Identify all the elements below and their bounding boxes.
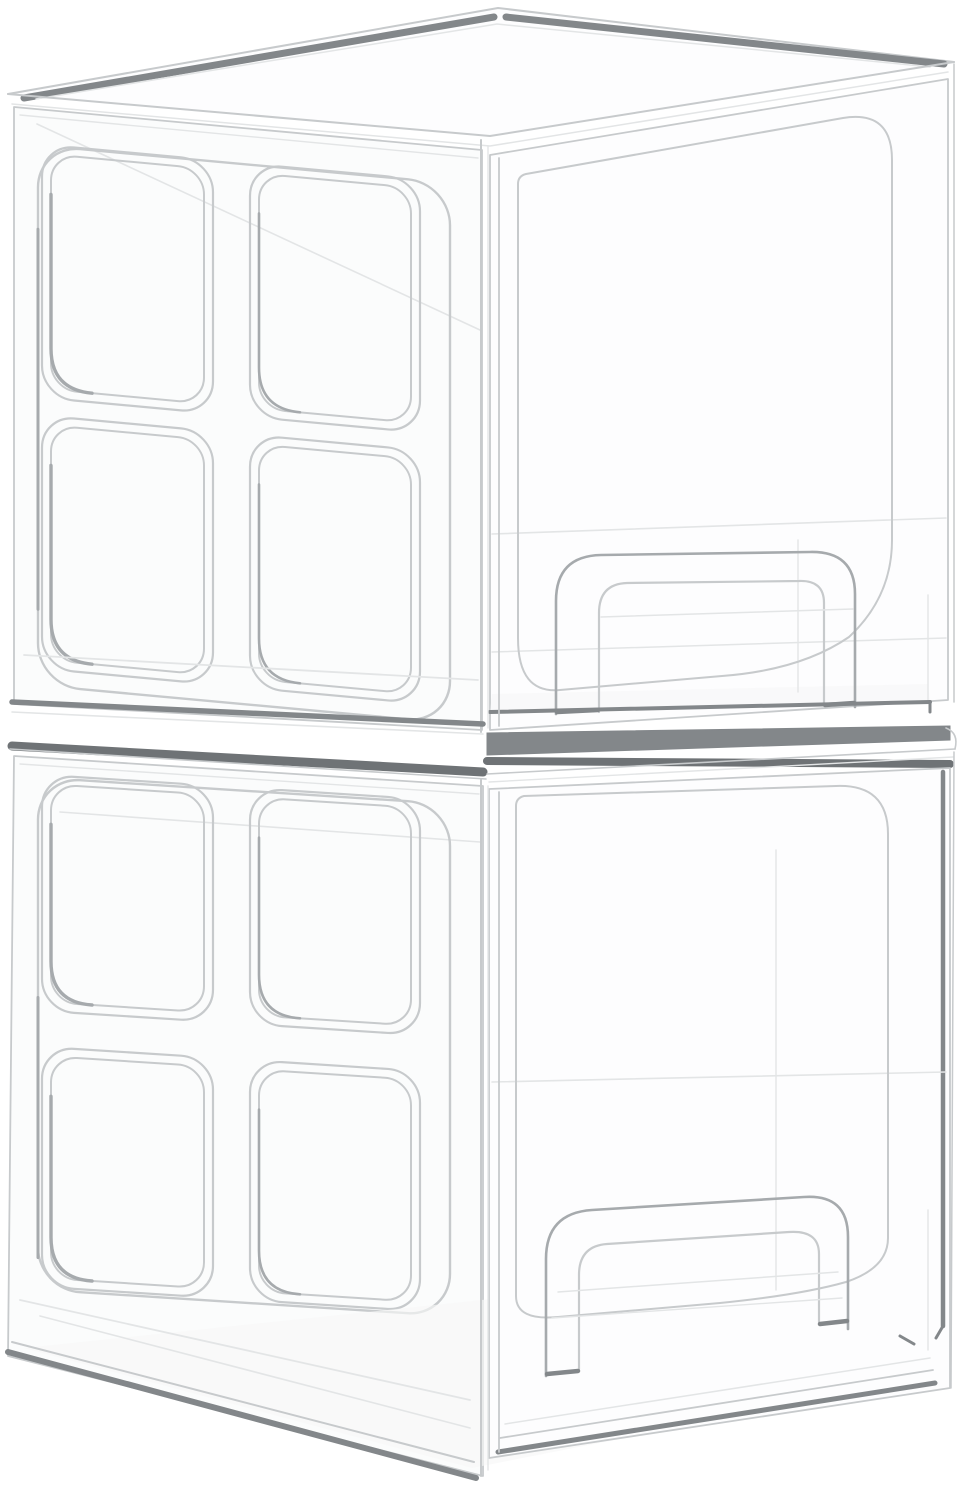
- acrylic-drawers-illustration: Two stacked transparent acrylic pull-out…: [0, 0, 966, 1500]
- bottom-unit-drawer-front: [489, 752, 954, 1458]
- case-right-edge: [951, 752, 954, 1388]
- top-unit-side-panel: [14, 107, 482, 730]
- top-unit-drawer-front: [490, 64, 954, 730]
- handle-foot-shadow: [820, 1321, 847, 1324]
- handle-foot-shadow: [547, 1371, 578, 1374]
- bottom-unit: [8, 752, 954, 1478]
- product-photo: Two stacked transparent acrylic pull-out…: [0, 0, 966, 1500]
- top-unit-base-rim-right: [487, 726, 950, 755]
- top-unit: [8, 8, 954, 732]
